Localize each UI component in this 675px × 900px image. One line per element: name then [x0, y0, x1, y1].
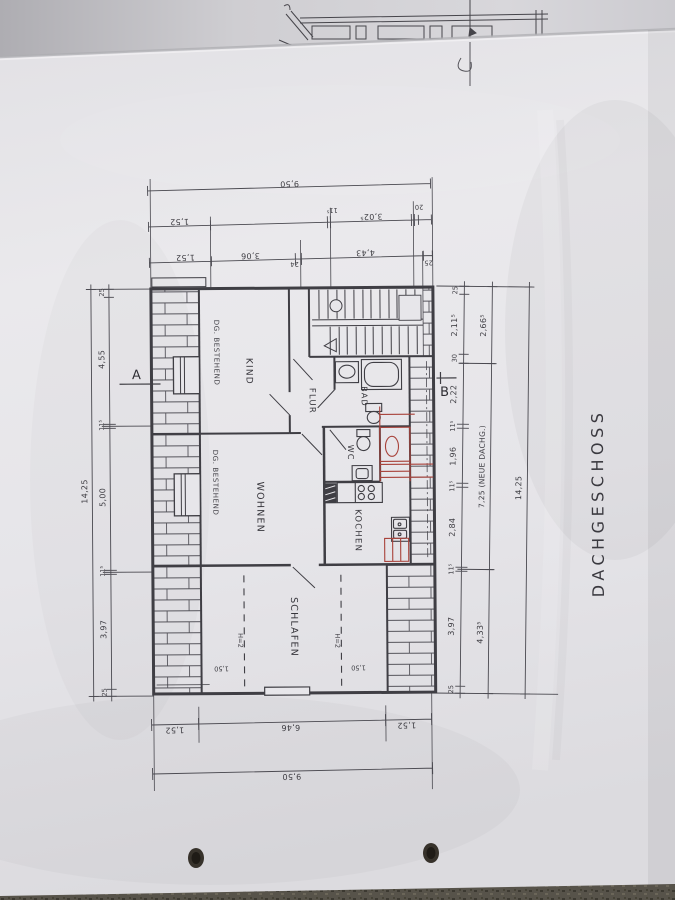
label-150-left: 1,50	[214, 665, 229, 673]
floorplan-svg: 9,50 1,52 11⁵ 3,02⁵ 20 1,52 3,06 24 4,43…	[0, 0, 675, 900]
dim-right-7: 2,84	[448, 518, 457, 537]
dim-right-2: 30	[451, 354, 459, 362]
dim-left-total: 14,25	[80, 479, 89, 503]
dim-bottom1-0: 1,52	[165, 725, 184, 734]
dim-top3-4: 25	[424, 259, 433, 267]
dim-left-2: 11⁵	[98, 419, 106, 430]
photo-of-floor-plan: 9,50 1,52 11⁵ 3,02⁵ 20 1,52 3,06 24 4,43…	[0, 0, 675, 900]
kitchen-appliance	[324, 484, 336, 503]
dim-right-8: 11⁵	[447, 563, 455, 574]
room-label-bad: BAD	[360, 386, 369, 407]
dim-right-outer-1: 7,25 (NEUE DACHG.)	[477, 425, 487, 508]
label-dg-bestehend-mid: DG. BESTEHEND	[211, 450, 219, 516]
room-label-kochen: KOCHEN	[352, 509, 362, 552]
dim-top2-0: 1,52	[170, 217, 189, 226]
stair-column	[330, 300, 342, 312]
dim-right-0: 25	[451, 286, 459, 294]
dim-top3-3: 4,43	[356, 248, 375, 257]
dim-right-4: 11⁵	[449, 420, 457, 431]
dim-right-outer-2: 4,33⁵	[476, 621, 485, 644]
label-h2-right: H=2	[333, 633, 341, 648]
dim-right-1: 2,11⁵	[450, 314, 459, 337]
dim-right-total: 14,25	[514, 476, 523, 500]
label-h2-left: H=2	[236, 633, 244, 648]
section-marker-a: A	[132, 368, 141, 383]
dim-right-3: 2,22	[449, 385, 458, 404]
dim-right-5: 1,96	[449, 447, 458, 466]
room-label-wc: WC	[346, 445, 355, 461]
dim-top2-2: 3,02⁵	[360, 212, 383, 222]
dim-right-9: 3,97	[447, 617, 456, 636]
dim-top-total: 9,50	[280, 179, 299, 188]
dim-bottom1-1: 6,46	[281, 723, 300, 732]
dim-right-outer-0: 2,66⁵	[479, 314, 488, 337]
dim-left-0: 25	[98, 288, 106, 296]
dim-top3-0: 1,52	[176, 253, 195, 262]
page-title: DACHGESCHOSS	[588, 409, 608, 598]
dim-left-5: 3,97	[99, 620, 108, 639]
label-dg-bestehend-top: DG. BESTEHEND	[212, 320, 220, 386]
room-label-flur: FLUR	[307, 388, 317, 414]
dim-right-10: 25	[447, 685, 455, 693]
dim-top3-2: 24	[290, 260, 299, 268]
dim-left-1: 4,55	[97, 350, 106, 369]
dim-top2-1: 11⁵	[326, 206, 338, 214]
dim-left-6: 25	[101, 688, 109, 696]
dim-left-4: 11⁵	[99, 565, 107, 576]
room-label-wohnen: WOHNEN	[254, 482, 265, 534]
label-150-right: 1,50	[351, 664, 366, 672]
dim-top2-3: 20	[415, 203, 424, 211]
dim-bottom-total: 9,50	[282, 772, 301, 781]
room-label-kind: KIND	[243, 358, 253, 385]
section-marker-b: B	[440, 385, 449, 400]
dim-top3-1: 3,06	[241, 251, 260, 260]
dim-left-3: 5,00	[98, 488, 107, 507]
dim-right-6: 11⁵	[448, 480, 456, 491]
dim-bottom1-2: 1,52	[397, 720, 416, 729]
room-label-schlafen: SCHLAFEN	[288, 597, 299, 657]
